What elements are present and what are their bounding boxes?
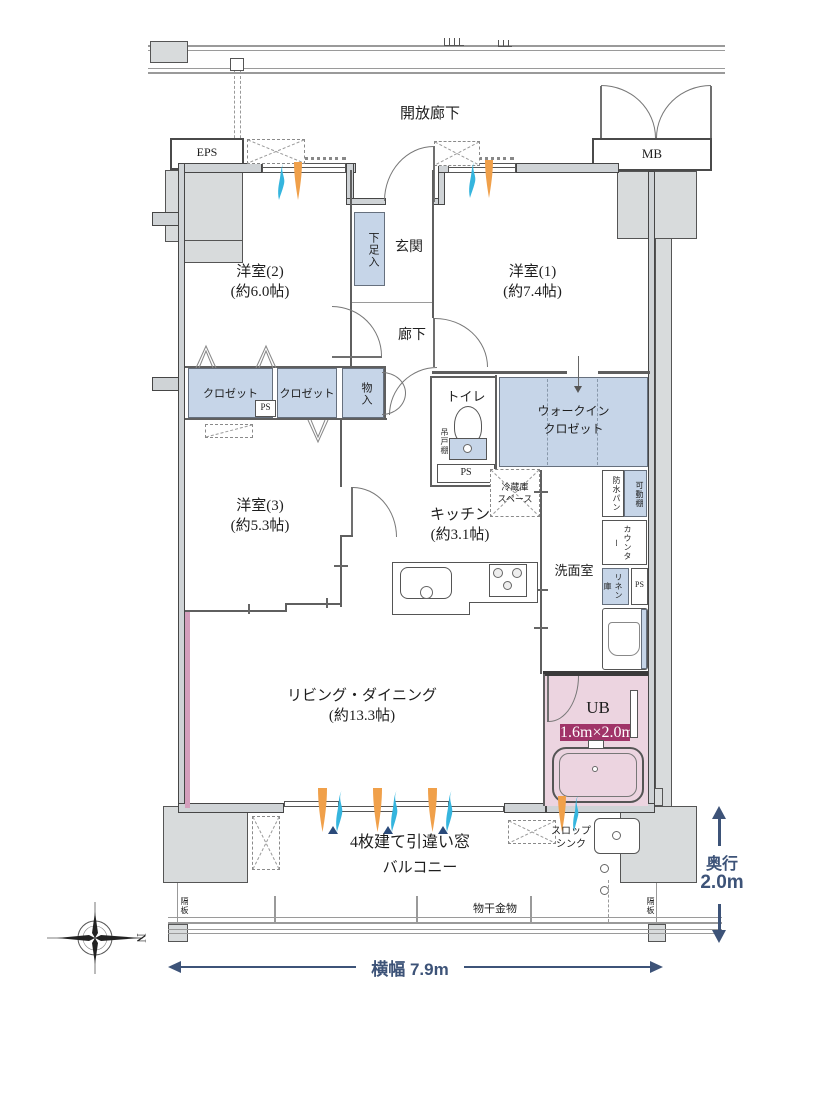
wic-label-1: ウォークイン [499,402,648,418]
kitchen-sink-drain [420,586,433,599]
partition-dash-line [177,883,178,923]
interior-wall [432,371,567,374]
waterproof-pan-label: 防水パン [604,473,622,515]
depth-dim-line [718,904,721,932]
counter-label: カウンター [615,523,633,563]
stove-burner [503,581,512,590]
bedroom2-size: (約6.0帖) [185,282,335,302]
interior-wall [540,470,542,674]
entrance-label: 玄関 [384,238,434,256]
interior-wall [543,674,545,806]
interior-wall [285,603,287,612]
width-dim-arrow-right [650,961,663,973]
sliding-window-label: 4枚建て引違い窓 [340,828,480,842]
balcony-label: バルコニー [352,858,488,878]
fence-post [274,896,276,924]
width-dim-label: 横幅 7.9m [355,955,465,979]
bedroom2-door-arc [332,306,382,356]
hallway-label: 廊下 [390,326,434,344]
corridor-line [148,50,725,51]
column [617,171,697,239]
bedroom1-door-arc [435,318,488,367]
vent-louver-icon [498,40,512,47]
kitchen-door-arc [353,487,397,537]
sliding-window-panel [394,801,449,807]
mb-label: MB [592,146,712,162]
floor-plan: 開放廊下 EPS MB [0,0,820,1105]
drain-pipe-icon [230,58,244,71]
outer-wall-bottom [504,803,546,813]
outer-wall-left [178,163,185,810]
washroom-label: 洗面室 [545,562,603,580]
interior-wall [430,376,497,378]
depth-dim-line [718,818,721,846]
ub-shelf [630,690,638,738]
wic-slide-mark [578,356,579,386]
outer-wall [346,198,386,205]
toilet-label: トイレ [438,388,494,406]
kitchen-counter [392,602,470,615]
hanger-pipe-icon [305,420,331,444]
bedroom2-name: 洋室(2) [185,262,335,282]
shoe-box-label: 下足入 [357,218,381,282]
bedroom1-size: (約7.4帖) [450,282,615,302]
sliding-window-panel [449,806,504,812]
slide-door-tick [534,627,548,629]
slide-door-tick [326,598,328,608]
eps-label: EPS [170,145,244,161]
ps-label-1: PS [255,402,276,415]
window-bedroom2 [262,163,346,173]
living-size: (約13.3帖) [262,706,462,726]
wic-slide-arrow [574,386,582,393]
mb-door-arc [601,85,656,138]
slide-door-tick [248,604,250,614]
interior-wall [185,418,387,420]
airflow-blue-icon [276,162,288,200]
partition-dash-line [656,883,657,923]
depth-dim-label: 奥行 [694,850,750,870]
balcony-fence [168,922,722,924]
wic-label-2: クロゼット [499,420,648,436]
airflow-triangle-icon [328,826,338,834]
interior-wall [285,603,340,605]
sliding-window-panel [284,801,339,807]
balcony-fence [168,933,722,934]
closet-b-label: クロゼット [277,385,337,401]
closet-a-label: クロゼット [188,385,273,401]
bedroom3-name: 洋室(3) [185,496,335,516]
slide-door-tick [334,565,348,567]
sliding-window-panel [339,806,394,812]
compass-icon [45,900,145,976]
balcony-ac-outline [252,816,280,870]
outer-wall [178,163,262,173]
linen-label: リネン庫 [606,570,624,603]
airflow-orange-icon [483,160,495,198]
outer-wall-bottom [178,803,284,813]
bathtub-drain [592,766,598,772]
front-door-arc [384,146,434,201]
outer-wall-right [648,171,655,812]
airflow-blue-icon [467,160,479,198]
mono-ire-label: 物入 [352,372,374,416]
vent-louver-icon [444,38,464,46]
hanger-pipe-icon [253,344,279,368]
washbasin-mirror [641,609,647,669]
mb-door-arc [656,85,711,138]
bathtub-inner [559,753,637,797]
bathtub-deck [588,740,604,749]
corridor-line [148,45,725,47]
column [655,238,672,808]
futon-storage-outline [205,424,253,438]
width-dim-line [464,966,650,968]
window-bedroom2 [262,167,346,168]
drying-fixture-label: 物干金物 [445,900,545,915]
living-name: リビング・ダイニング [262,686,462,706]
wall-stub [152,377,179,391]
fridge-label-1: 冷蔵庫 [490,480,540,492]
window-bedroom1 [448,167,516,168]
wall-stub [152,212,179,226]
kitchen-size: (約3.1帖) [402,525,518,545]
slop-sink-label-1: スロップ [545,822,597,834]
stove-burner [493,568,503,578]
column [165,170,243,242]
slop-sink-drain [612,831,621,840]
compass-north-label: N [133,930,149,946]
width-dim-arrow-left [168,961,181,973]
bedroom1-name: 洋室(1) [450,262,615,282]
ub-size-badge: 1.6m×2.0m [560,724,630,741]
toilet-door-arc [389,367,437,415]
washbasin-bowl [608,622,640,656]
movable-shelf-label: 可動棚 [627,473,645,515]
airflow-orange-icon [292,162,304,200]
interior-wall [432,170,434,288]
ps-label-2: PS [437,467,495,481]
toilet-tank-knob [463,444,472,453]
partition-left-label: 隔板 [176,890,190,922]
outer-wall [516,163,619,173]
depth-dim-value: 2.0m [694,872,750,896]
ub-label: UB [570,698,626,720]
width-dim-line [180,966,356,968]
interior-wall [598,371,650,374]
entrance-step [352,302,432,303]
column [163,806,248,883]
fridge-label-2: スペース [490,492,540,504]
interior-wall [185,610,285,612]
balcony-fence [168,917,722,918]
interior-wall [430,485,497,487]
interior-wall [495,375,497,469]
accent-wall [185,612,190,808]
hanger-pipe-icon [193,344,219,368]
bedroom3-size: (約5.3帖) [185,516,335,536]
ac-unit-outline [247,139,305,164]
depth-dim-arrow-down [712,930,726,943]
bedroom2-door-leaf [332,356,382,358]
partition-right-label: 隔板 [642,890,656,922]
interior-wall [340,420,342,487]
interior-wall [432,287,434,318]
balcony-fence [168,929,722,930]
stove-burner [512,568,522,578]
slop-sink-label-2: シンク [545,835,597,847]
corridor-end-box [150,41,188,63]
open-corridor-label: 開放廊下 [350,104,510,124]
slide-door-tick [534,491,548,493]
partition-dash-line [608,880,609,922]
interior-wall [340,537,342,607]
fence-post [416,896,418,924]
column [183,240,243,263]
balcony-drain [600,864,609,873]
ps-label-3: PS [629,580,650,592]
kitchen-name: キッチン [402,505,518,525]
